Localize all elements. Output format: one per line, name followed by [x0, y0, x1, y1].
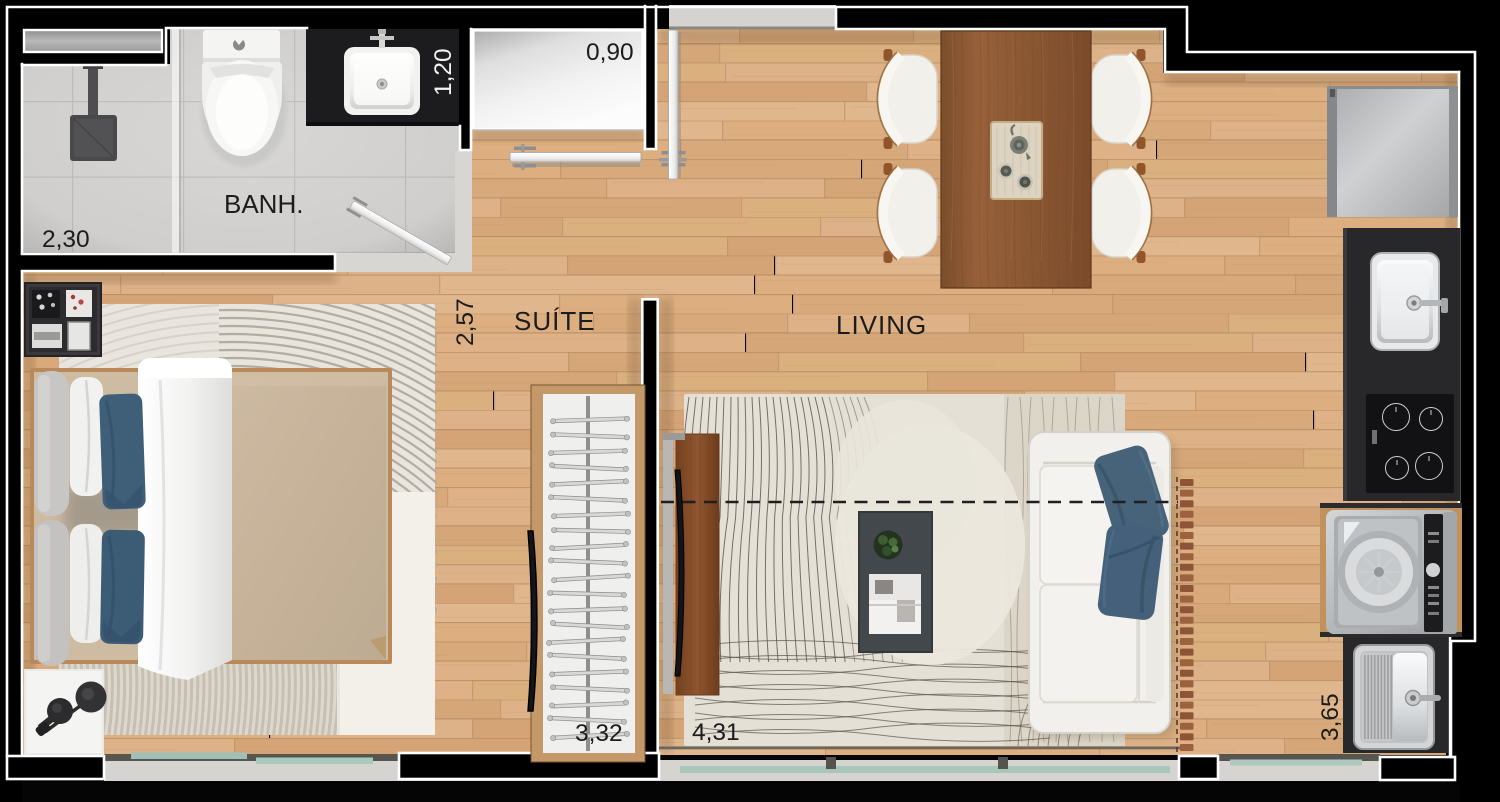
svg-text:4,31: 4,31 — [692, 719, 740, 746]
svg-text:1,20: 1,20 — [430, 48, 457, 96]
svg-text:0,90: 0,90 — [586, 39, 634, 66]
svg-text:SUÍTE: SUÍTE — [514, 306, 596, 336]
svg-text:BANH.: BANH. — [224, 189, 303, 219]
svg-text:LIVING: LIVING — [836, 310, 927, 340]
svg-text:2,57: 2,57 — [452, 298, 479, 346]
svg-text:3,65: 3,65 — [1317, 693, 1344, 741]
svg-text:2,30: 2,30 — [42, 226, 90, 253]
svg-text:3,32: 3,32 — [575, 720, 623, 747]
